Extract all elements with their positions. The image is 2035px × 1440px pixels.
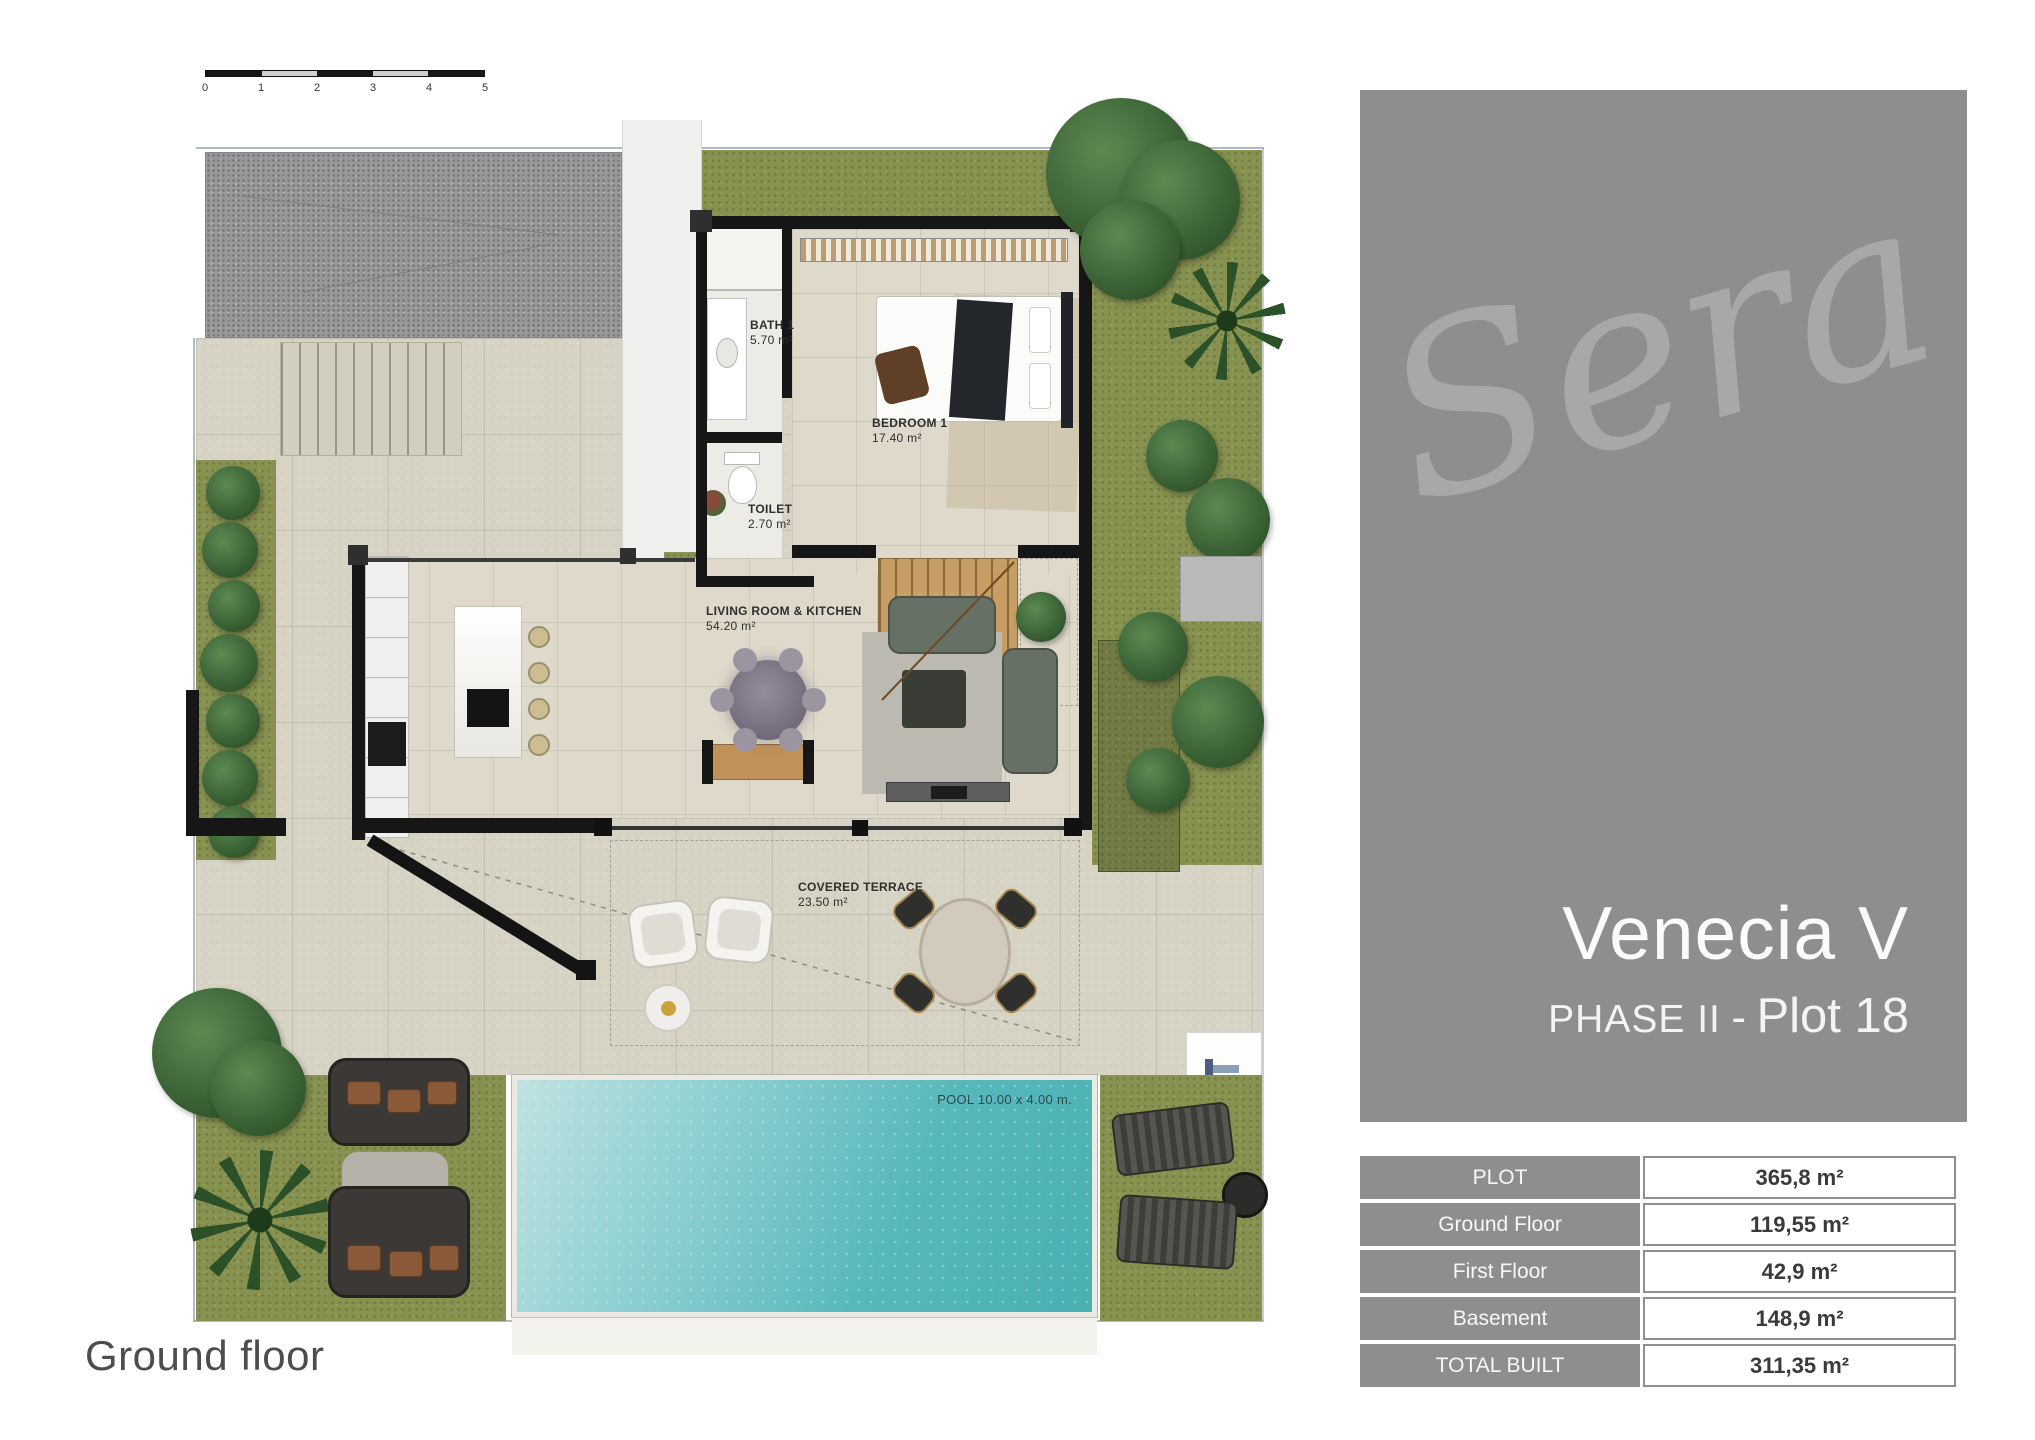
- row-label: PLOT: [1360, 1156, 1640, 1199]
- sun-lounger: [1116, 1194, 1238, 1270]
- scale-tick: 3: [370, 82, 376, 94]
- project-plot: Plot 18: [1756, 989, 1909, 1043]
- bar-stool: [528, 662, 550, 684]
- scale-tick: 0: [202, 82, 208, 94]
- pillow: [1029, 307, 1051, 353]
- pool-equipment-icon: [1213, 1065, 1239, 1073]
- palm-tree: [1168, 262, 1286, 380]
- areas-table: PLOT 365,8 m² Ground Floor 119,55 m² Fir…: [1360, 1156, 1956, 1391]
- sofa-cushion: [347, 1081, 381, 1105]
- sofa-cushion: [429, 1245, 459, 1271]
- pillow: [1029, 363, 1051, 409]
- bath-sink: [716, 338, 738, 368]
- sofa-cushion: [387, 1089, 421, 1113]
- wall-bath-bedroom: [782, 216, 792, 398]
- scale-tick: 1: [258, 82, 264, 94]
- wall-bedroom-south: [1018, 545, 1079, 558]
- room-name: TOILET: [748, 502, 792, 516]
- glass-wall-north: [365, 558, 695, 562]
- shower: [707, 229, 782, 291]
- driveway: [205, 152, 622, 338]
- room-name: BEDROOM 1: [872, 416, 947, 430]
- tv-console: [886, 782, 1010, 802]
- boundary-wall: [186, 690, 199, 836]
- wall-post: [690, 210, 712, 232]
- pool-label: POOL 10.00 x 4.00 m.: [937, 1092, 1072, 1107]
- scale-tick: 5: [482, 82, 488, 94]
- wall-kitchen-west: [352, 553, 365, 840]
- bush: [1126, 748, 1190, 812]
- entry-wall-post: [803, 740, 814, 784]
- bush: [1172, 676, 1264, 768]
- sofa-cushion: [427, 1081, 457, 1105]
- dining-chair: [733, 648, 757, 672]
- room-area: 54.20 m²: [706, 619, 756, 633]
- tv: [931, 786, 967, 799]
- sofa-cushion: [389, 1251, 423, 1277]
- row-value: 365,8 m²: [1643, 1156, 1956, 1199]
- brand-logo: Sera: [1360, 90, 1967, 650]
- wall-bath-toilet: [696, 432, 782, 443]
- outdoor-sofa: [328, 1186, 470, 1298]
- row-value: 42,9 m²: [1643, 1250, 1956, 1293]
- bed-blanket: [873, 344, 930, 406]
- garden-planter: [1180, 556, 1262, 622]
- coffee-table: [902, 670, 966, 728]
- plan-caption: Ground floor: [85, 1332, 324, 1380]
- bush: [1146, 420, 1218, 492]
- terrace-armchair: [703, 895, 775, 966]
- scale-bar: [205, 70, 485, 77]
- exterior-stairs: [280, 342, 462, 456]
- kitchen-island: [454, 606, 522, 758]
- room-label-terrace: COVERED TERRACE 23.50 m²: [798, 880, 923, 910]
- sofa-cushion: [347, 1245, 381, 1271]
- scale-tick: 2: [314, 82, 320, 94]
- toilet-tank: [724, 452, 760, 465]
- glass-wall-south: [600, 826, 1080, 830]
- row-label: First Floor: [1360, 1250, 1640, 1293]
- room-area: 5.70 m²: [750, 333, 793, 347]
- room-area: 23.50 m²: [798, 895, 848, 909]
- bed: [876, 296, 1062, 422]
- room-label-bedroom: BEDROOM 1 17.40 m²: [872, 416, 947, 446]
- wall-post: [1064, 818, 1082, 836]
- bush: [202, 522, 258, 578]
- bed-headboard: [1061, 292, 1073, 428]
- pool-walkway: [512, 1317, 1097, 1355]
- kitchen-oven: [368, 722, 406, 766]
- kitchen-cabinets: [365, 556, 409, 838]
- bush: [202, 750, 258, 806]
- wall-post: [852, 820, 868, 836]
- bush: [1118, 612, 1188, 682]
- dining-chair: [710, 688, 734, 712]
- bush: [200, 634, 258, 692]
- room-name: LIVING ROOM & KITCHEN: [706, 604, 862, 618]
- toilet-bowl: [728, 466, 757, 504]
- terrace-armchair: [626, 898, 700, 971]
- sofa-chaise: [1002, 648, 1058, 774]
- wall-bedroom-south: [792, 545, 876, 558]
- project-subtitle: PHASE II - Plot 18: [1389, 988, 1909, 1044]
- room-area: 17.40 m²: [872, 431, 922, 445]
- side-table: [644, 984, 692, 1032]
- dining-chair: [779, 648, 803, 672]
- table-row: Ground Floor 119,55 m²: [1360, 1203, 1956, 1246]
- table-row: TOTAL BUILT 311,35 m²: [1360, 1344, 1956, 1387]
- row-label: TOTAL BUILT: [1360, 1344, 1640, 1387]
- palm-tree: [190, 1150, 330, 1290]
- room-label-bath: BATH 1 5.70 m²: [750, 318, 794, 348]
- garden-grass-north: [702, 150, 1092, 222]
- indoor-plant: [1016, 592, 1066, 642]
- brand-logo-text: Sera: [1360, 144, 1962, 559]
- outdoor-sofa: [328, 1058, 470, 1146]
- row-label: Basement: [1360, 1297, 1640, 1340]
- table-row: Basement 148,9 m²: [1360, 1297, 1956, 1340]
- bush: [206, 466, 260, 520]
- wardrobe: [800, 238, 1068, 262]
- brand-panel: Sera Venecia V PHASE II - Plot 18: [1360, 90, 1967, 1122]
- dining-chair: [802, 688, 826, 712]
- wall-toilet-south: [696, 576, 814, 587]
- scale-tick: 4: [426, 82, 432, 94]
- dining-chair: [733, 728, 757, 752]
- bed-throw-dark: [949, 299, 1013, 421]
- dining-chair: [779, 728, 803, 752]
- cooktop: [467, 689, 509, 727]
- scale-bar-labels: 0 1 2 3 4 5: [205, 82, 485, 96]
- wall-post: [348, 545, 368, 565]
- room-name: COVERED TERRACE: [798, 880, 923, 894]
- wall-post: [576, 960, 596, 980]
- wall-south-solid: [365, 818, 600, 833]
- room-area: 2.70 m²: [748, 517, 791, 531]
- entry-wall-post: [702, 740, 713, 784]
- sofa: [888, 596, 996, 654]
- wall-west-bath: [696, 216, 707, 578]
- entry-path: [622, 120, 702, 582]
- wall-post: [620, 548, 636, 564]
- project-separator: -: [1725, 993, 1752, 1042]
- bar-stool: [528, 698, 550, 720]
- wall-north: [696, 216, 1092, 229]
- row-value: 148,9 m²: [1643, 1297, 1956, 1340]
- bar-stool: [528, 626, 550, 648]
- tree-canopy: [210, 1040, 306, 1136]
- wall-east: [1079, 216, 1092, 830]
- row-label: Ground Floor: [1360, 1203, 1640, 1246]
- boundary-wall: [186, 818, 286, 836]
- project-title: Venecia V: [1389, 890, 1909, 976]
- table-row: First Floor 42,9 m²: [1360, 1250, 1956, 1293]
- side-table-plate: [661, 1001, 676, 1016]
- row-value: 311,35 m²: [1643, 1344, 1956, 1387]
- room-label-toilet: TOILET 2.70 m²: [748, 502, 792, 532]
- row-value: 119,55 m²: [1643, 1203, 1956, 1246]
- bush: [208, 580, 260, 632]
- wall-post: [594, 818, 612, 836]
- room-label-living: LIVING ROOM & KITCHEN 54.20 m²: [706, 604, 862, 634]
- table-row: PLOT 365,8 m²: [1360, 1156, 1956, 1199]
- brochure-page: 0 1 2 3 4 5: [0, 0, 2035, 1440]
- tree-canopy: [1080, 200, 1180, 300]
- bush: [206, 694, 260, 748]
- bar-stool: [528, 734, 550, 756]
- bush: [1186, 478, 1270, 562]
- swimming-pool: POOL 10.00 x 4.00 m.: [512, 1075, 1097, 1317]
- project-phase: PHASE II: [1548, 998, 1721, 1041]
- room-name: BATH 1: [750, 318, 794, 332]
